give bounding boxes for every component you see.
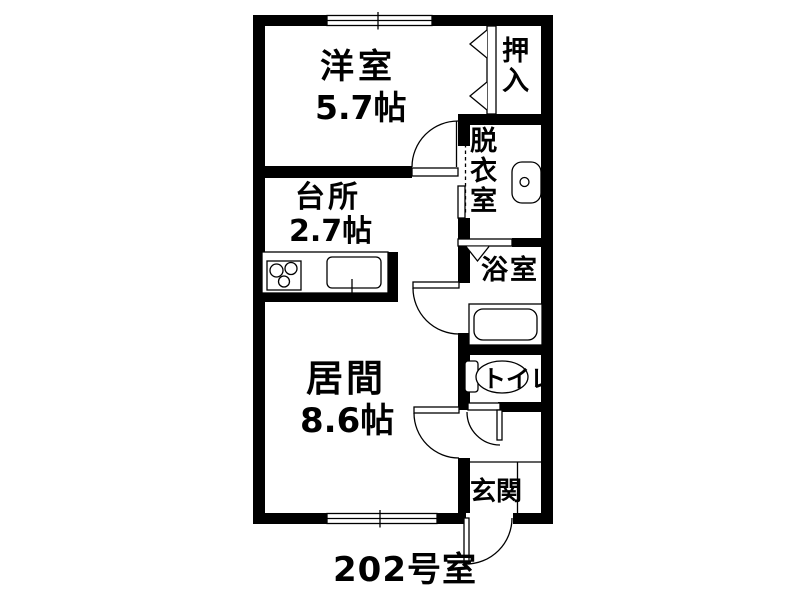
kitchen-counter xyxy=(262,252,388,294)
window-top xyxy=(327,12,432,30)
toilet-door-threshold xyxy=(468,403,500,410)
hall-upper-door-leaf xyxy=(413,282,459,288)
hall-lower-door xyxy=(414,407,459,458)
wall-bottom-mid xyxy=(437,513,466,524)
yoshitsu-door-arc xyxy=(412,121,458,167)
wall-bath-top xyxy=(512,238,542,247)
room-label-datsuishitsu: 脱衣室 xyxy=(469,127,498,218)
wall-right xyxy=(541,15,553,524)
folding-door-track xyxy=(487,26,496,114)
wall-central-2 xyxy=(458,218,470,283)
wall-bottom-left xyxy=(253,513,327,524)
hall-lower-door-leaf xyxy=(414,407,459,413)
room-size-yoshitsu: 5.7帖 xyxy=(315,91,406,124)
room-label-yoshitsu: 洋室 xyxy=(320,50,396,84)
yoshitsu-door xyxy=(412,121,458,176)
bath-door-track xyxy=(458,239,512,246)
room-label-oshiire: 押入 xyxy=(501,37,530,97)
sliding-door-leaf xyxy=(458,186,465,218)
toilet-door xyxy=(467,403,502,445)
room-size-ima: 8.6帖 xyxy=(300,404,394,438)
wall-bath-bottom xyxy=(458,345,553,355)
bathtub-inner xyxy=(474,309,537,340)
window-bottom xyxy=(327,510,437,528)
toilet-door-arc xyxy=(467,412,500,445)
oshiire-folding-door xyxy=(470,26,496,114)
toilet-door-leaf xyxy=(497,410,502,440)
wall-bottom-right xyxy=(513,513,553,524)
wall-central-4 xyxy=(458,458,470,513)
room-label-daidokoro: 台所 xyxy=(295,183,361,213)
hall-lower-door-arc xyxy=(414,413,459,458)
washbasin-bowl xyxy=(512,162,541,203)
bathtub xyxy=(469,304,542,345)
folding-door-chevron-top xyxy=(470,30,487,58)
hall-upper-door xyxy=(413,282,459,334)
wall-toilet-bottom xyxy=(498,402,542,412)
hall-upper-door-arc xyxy=(413,288,459,334)
kitchen-sink xyxy=(327,257,381,288)
room-label-yokushitsu: 浴室 xyxy=(481,257,539,284)
room-size-daidokoro: 2.7帖 xyxy=(289,217,372,247)
room-label-toire: トイレ xyxy=(482,367,554,391)
yoshitsu-door-threshold xyxy=(412,168,458,176)
wall-top-right xyxy=(432,15,553,26)
washbasin xyxy=(512,162,541,203)
wall-yoshitsu-bottom xyxy=(253,166,412,178)
room-label-ima: 居間 xyxy=(306,360,386,397)
wall-oshiire-bottom xyxy=(458,114,553,125)
floorplan-page: 洋室 5.7帖 台所 2.7帖 居間 8.6帖 押入 脱衣室 浴室 トイレ 玄関… xyxy=(0,0,800,600)
unit-label: 202号室 xyxy=(333,553,477,587)
room-label-genkan: 玄関 xyxy=(470,479,522,505)
folding-door-chevron-bottom xyxy=(470,82,487,110)
